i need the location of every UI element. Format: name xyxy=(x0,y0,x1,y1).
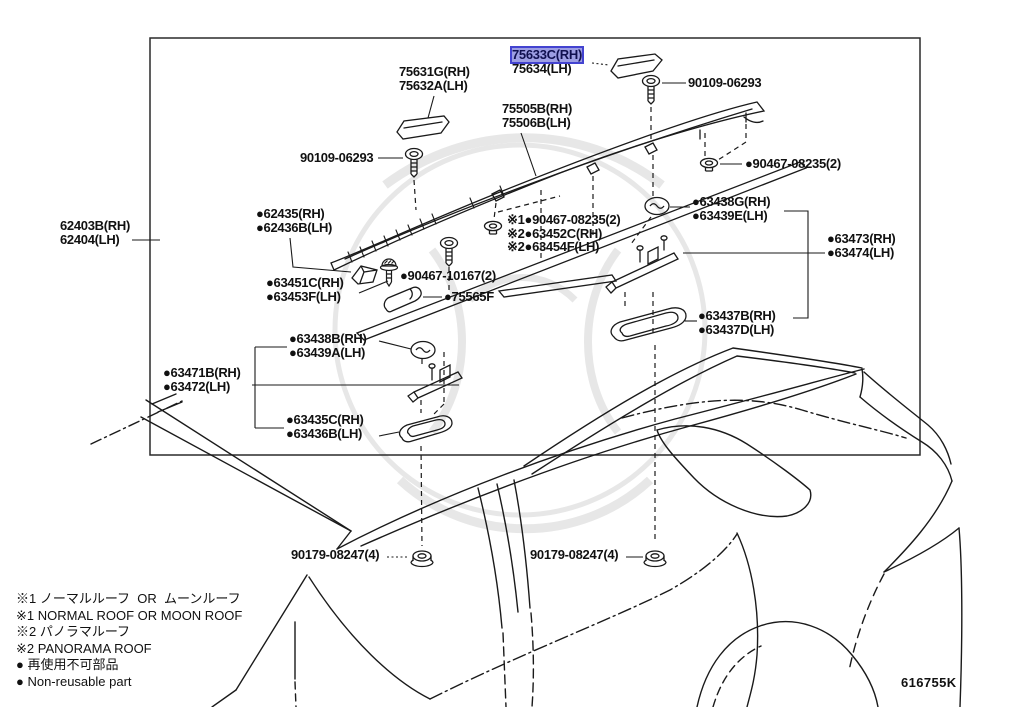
screw-icon-10167 xyxy=(381,259,398,286)
grommet-icon-right xyxy=(701,158,718,171)
pad-63437 xyxy=(611,308,686,341)
part-label-62435[interactable]: ●62435(RH)●62436B(LH) xyxy=(256,207,332,234)
part-label-63438g[interactable]: ●63438G(RH)●63439E(LH) xyxy=(692,195,770,222)
part-label-90467-08235-right[interactable]: ●90467-08235(2) xyxy=(745,157,841,171)
part-label-90109-06293-top[interactable]: 90109-06293 xyxy=(688,76,761,90)
part-label-90179-08247-right[interactable]: 90179-08247(4) xyxy=(530,548,618,562)
c-pillar xyxy=(737,533,758,707)
part-label-63437b[interactable]: ●63437B(RH)●63437D(LH) xyxy=(698,309,776,336)
part-label-63473[interactable]: ●63473(RH)●63474(LH) xyxy=(827,232,895,259)
b-pillar-3 xyxy=(514,480,530,608)
hatch-glass-edge xyxy=(884,481,952,572)
part-label-63438b[interactable]: ●63438B(RH)●63439A(LH) xyxy=(289,332,367,359)
roof-edge-far-inner xyxy=(532,356,855,474)
legend-notes: ※1 ノーマルルーフ OR ムーンルーフ※1 NORMAL ROOF OR MO… xyxy=(16,591,242,690)
part-label-90109-06293-left[interactable]: 90109-06293 xyxy=(300,151,373,165)
a-pillar xyxy=(236,575,307,690)
strip-75633 xyxy=(611,54,662,78)
tail-edge xyxy=(959,528,962,707)
rod-75565 xyxy=(384,287,421,312)
strip-75631 xyxy=(397,116,449,139)
part-label-75505b[interactable]: 75505B(RH)75506B(LH) xyxy=(502,102,572,129)
b-pillar-2 xyxy=(497,484,518,612)
roof-edge-near-inner xyxy=(361,374,856,546)
part-label-63435c[interactable]: ●63435C(RH)●63436B(LH) xyxy=(286,413,364,440)
part-label-90467-10167[interactable]: ●90467-10167(2) xyxy=(400,269,496,283)
parts-diagram: 62403B(RH)62404(LH)75631G(RH)75632A(LH)7… xyxy=(0,0,1024,707)
roof-dashdot xyxy=(622,400,906,438)
spoiler-tip xyxy=(860,369,863,397)
legend-note-line: ● 再使用不可部品 xyxy=(16,657,242,674)
part-label-62403b[interactable]: 62403B(RH)62404(LH) xyxy=(60,219,130,246)
legend-note-line: ※1 ノーマルルーフ OR ムーンルーフ xyxy=(16,591,242,608)
part-label-63471b[interactable]: ●63471B(RH)●63472(LH) xyxy=(163,366,241,393)
clip-icon-left xyxy=(411,342,435,359)
spoiler-edge xyxy=(860,397,952,481)
nut-icon-left xyxy=(411,551,433,567)
bolt-icon-topright xyxy=(643,76,660,105)
rail-tab-2 xyxy=(587,163,599,174)
part-label-75565f[interactable]: ●75565F xyxy=(444,290,494,304)
quarter-window xyxy=(657,426,811,517)
legend-note-line: ※1 NORMAL ROOF OR MOON ROOF xyxy=(16,608,242,625)
clip-icon-right xyxy=(645,198,669,215)
diagram-code: 616755K xyxy=(901,675,957,690)
hatch-crease xyxy=(884,528,959,572)
nut-icon-right xyxy=(644,551,666,567)
part-label-63451c[interactable]: ●63451C(RH)●63453F(LH) xyxy=(266,276,344,303)
wedge-62435 xyxy=(352,266,377,284)
legend-note-line: ※2 PANORAMA ROOF xyxy=(16,641,242,658)
legend-note-line: ● Non-reusable part xyxy=(16,674,242,691)
grommet-icon-mid xyxy=(485,221,502,234)
rail-tab-3 xyxy=(645,143,657,154)
part-label-90179-08247-left[interactable]: 90179-08247(4) xyxy=(291,548,379,562)
legend-note-line: ※2 パノラマルーフ xyxy=(16,624,242,641)
part-label-75633c[interactable]: 75633C(RH)75634(LH) xyxy=(512,48,582,75)
part-label-roof-variant-group[interactable]: ※1●90467-08235(2)※2●63452C(RH)※2●63454F(… xyxy=(507,213,620,254)
part-label-75631g[interactable]: 75631G(RH)75632A(LH) xyxy=(399,65,470,92)
